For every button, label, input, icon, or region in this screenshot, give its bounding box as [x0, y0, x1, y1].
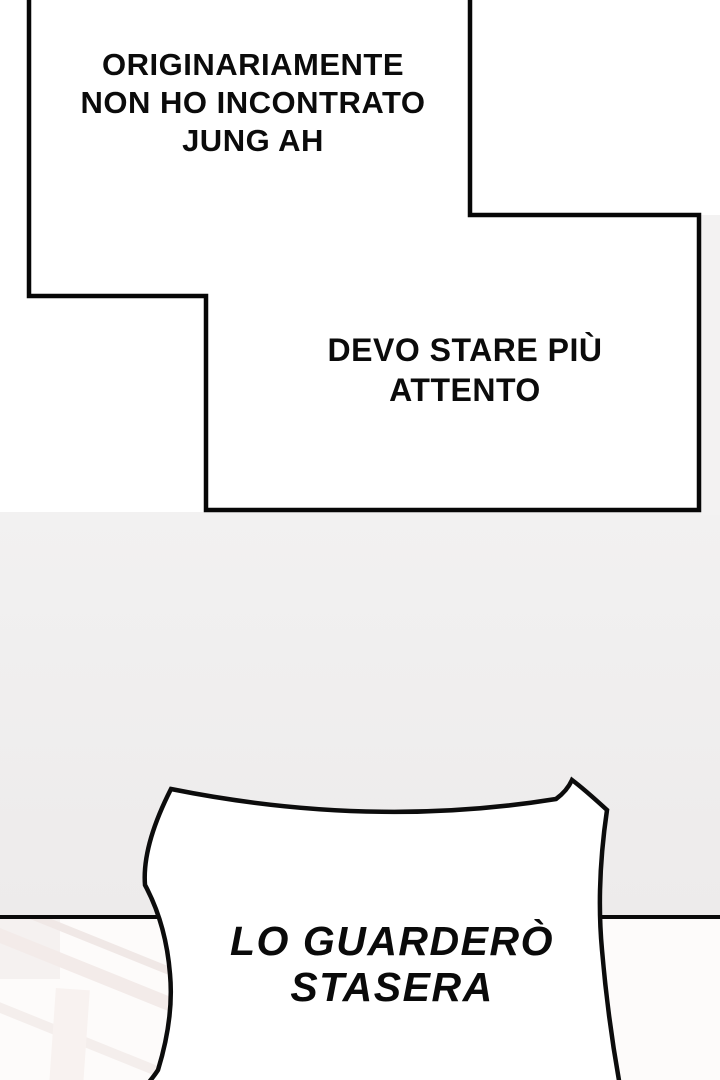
caption-top-left: ORIGINARIAMENTE NON HO INCONTRATO JUNG A…: [60, 46, 446, 160]
comic-page: ORIGINARIAMENTE NON HO INCONTRATO JUNG A…: [0, 0, 720, 1080]
caption-line: DEVO STARE PIÙ: [284, 330, 646, 370]
caption-line: JUNG AH: [60, 122, 446, 160]
caption-bottom-right: DEVO STARE PIÙ ATTENTO: [284, 330, 646, 410]
speech-bubble: [0, 750, 720, 1080]
speech-line: LO GUARDERÒ: [192, 918, 592, 964]
caption-line: ATTENTO: [284, 370, 646, 410]
speech-bubble-text: LO GUARDERÒ STASERA: [192, 918, 592, 1010]
caption-line: NON HO INCONTRATO: [60, 84, 446, 122]
caption-line: ORIGINARIAMENTE: [60, 46, 446, 84]
speech-line: STASERA: [192, 964, 592, 1010]
